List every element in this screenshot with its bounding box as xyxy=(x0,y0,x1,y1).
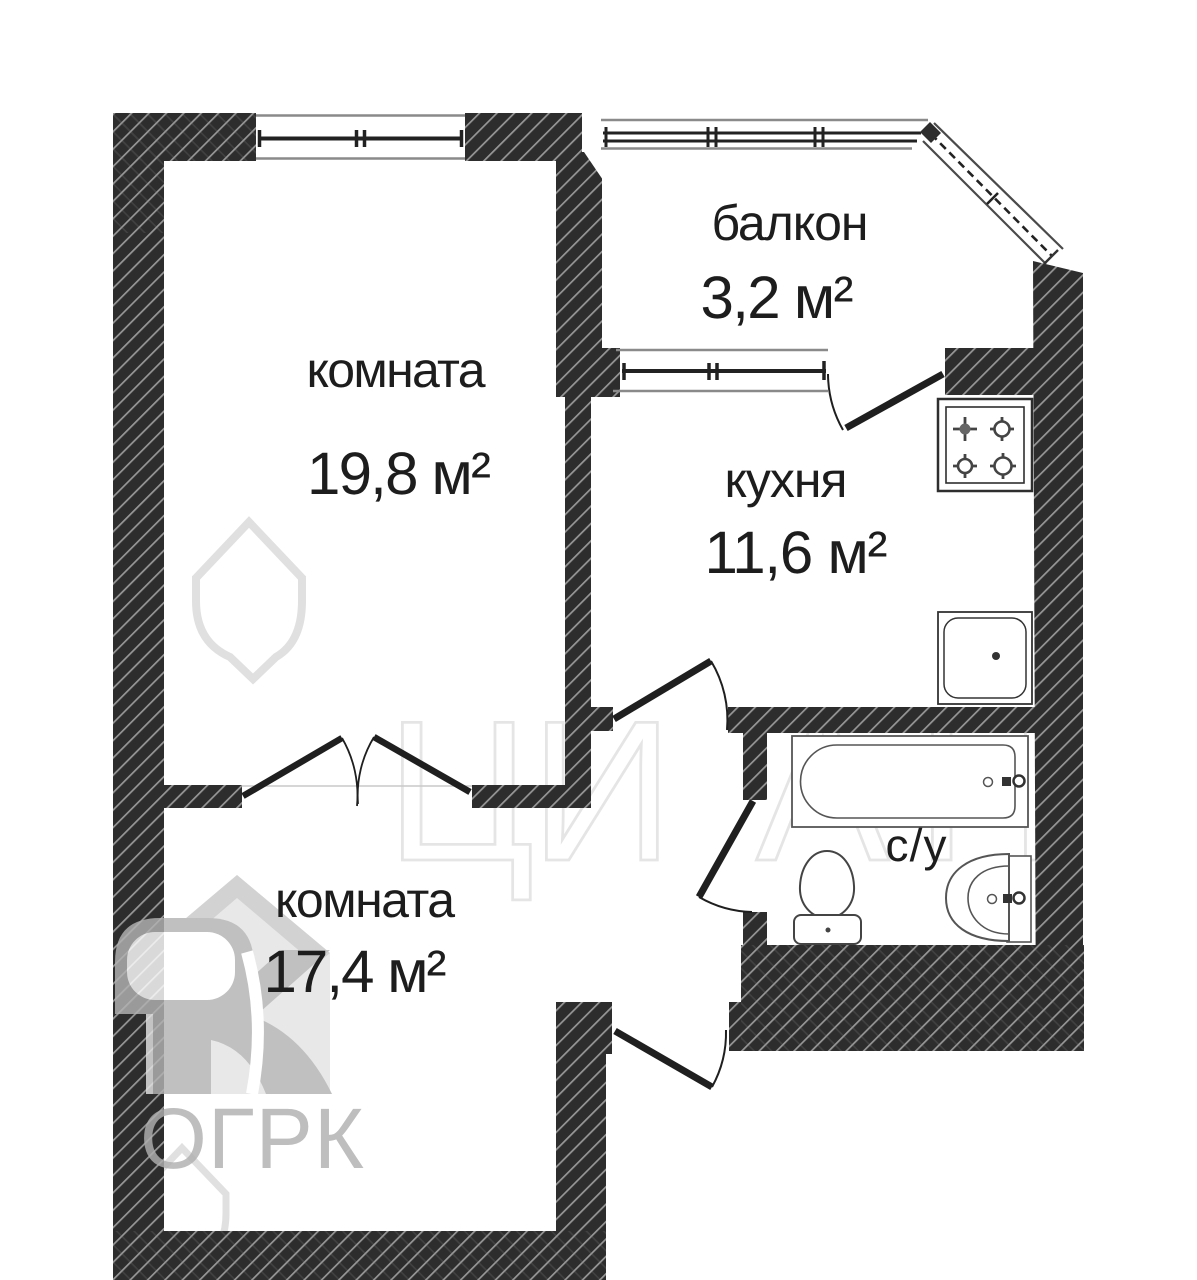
svg-text:ОГРК: ОГРК xyxy=(140,1091,365,1187)
svg-text:с/у: с/у xyxy=(886,819,947,871)
svg-text:19,8 м²: 19,8 м² xyxy=(307,440,491,507)
svg-text:11,6 м²: 11,6 м² xyxy=(705,519,888,586)
svg-text:кухня: кухня xyxy=(725,452,848,508)
svg-text:балкон: балкон xyxy=(712,195,869,251)
svg-text:комната: комната xyxy=(275,872,455,928)
svg-text:комната: комната xyxy=(307,342,486,398)
svg-text:17,4 м²: 17,4 м² xyxy=(264,938,447,1005)
svg-text:3,2 м²: 3,2 м² xyxy=(701,264,854,331)
